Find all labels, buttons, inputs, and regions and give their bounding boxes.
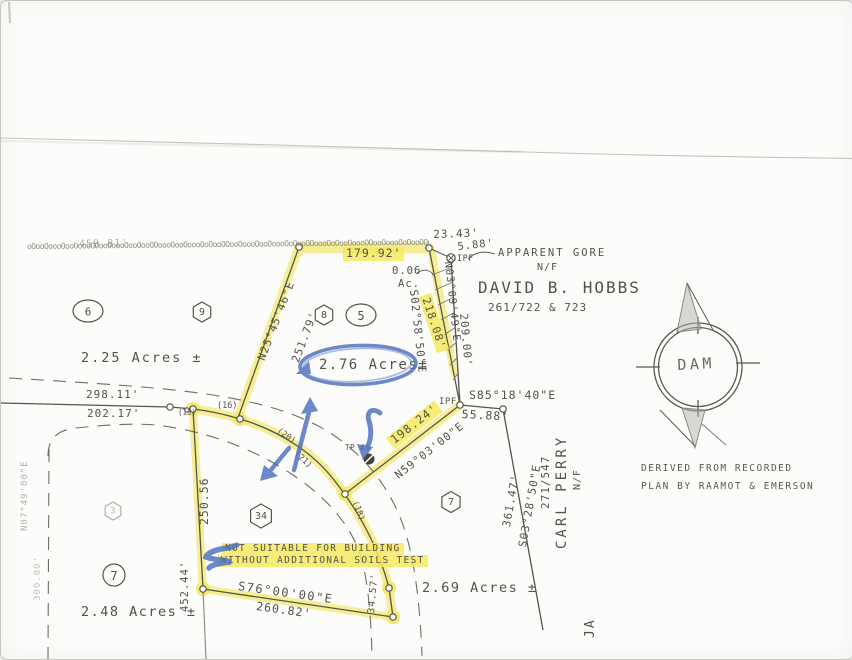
parcel-marker-5: 5 — [357, 310, 364, 322]
gore-area-value: 0.06 — [392, 266, 421, 277]
parcel-marker-34: 34 — [255, 512, 267, 522]
hobbs-tie-distance: 55.88' — [461, 409, 509, 423]
parcel-marker-3-faint: 3 — [110, 508, 115, 517]
hobbs-owner-name: DAVID B. HOBBS — [478, 280, 641, 296]
credits-line2: PLAN BY RAAMOT & EMERSON — [641, 482, 814, 492]
hobbs-deed-ref: 261/722 & 723 — [488, 302, 587, 313]
lot5-acreage: 2.76 Acres± — [319, 358, 428, 372]
lot7-east-acreage: 2.69 Acres ± — [422, 582, 538, 596]
perry-nf-label: N/F — [573, 469, 583, 490]
ja-initials: JA — [584, 618, 597, 638]
wall-distance-label: 459.81' — [79, 239, 128, 250]
west-road-bearing: N07°49'00"E — [21, 460, 30, 531]
lot6-acreage: 2.25 Acres ± — [81, 352, 203, 366]
curve-label-16: (16) — [217, 402, 237, 411]
ipf-mid-label: IPF — [439, 398, 457, 407]
lot6-road-distance-lower: 202.17' — [87, 408, 140, 419]
test-pit-icon — [364, 454, 375, 465]
parcel-marker-8: 8 — [321, 311, 327, 321]
perry-deed-ref: 271/547 — [540, 456, 551, 509]
hobbs-tie-bearing: S85°18'40"E — [469, 390, 556, 402]
gore-top-distance: 23.43' — [433, 227, 479, 240]
ipf-top-label: IPF — [457, 255, 474, 264]
south-arrow-icon — [682, 408, 705, 448]
parcel-marker-6: 6 — [85, 307, 92, 318]
soils-note-line1: NOT SUITABLE FOR BUILDING — [222, 543, 404, 555]
north-arrow-icon — [677, 283, 701, 332]
gore-area-unit: Ac. — [398, 279, 420, 290]
parcel-marker-9: 9 — [199, 308, 205, 318]
lot7-west-acreage: 2.48 Acres ± — [81, 606, 197, 620]
curve-label-13: (13) — [178, 409, 196, 417]
lot5-north-distance: 179.92' — [343, 247, 404, 261]
perry-owner-name: CARL PERRY — [555, 435, 569, 549]
lot34-west-distance: 250.56 — [199, 477, 211, 525]
parcel-marker-7-circle: 7 — [110, 570, 117, 582]
scan-artifacts — [1, 2, 852, 159]
compass-stamp-label: DAM — [677, 356, 715, 373]
credits-line1: DERIVED FROM RECORDED — [641, 464, 793, 474]
lot6-road-distance-upper: 298.11' — [86, 389, 139, 400]
apparent-gore-label: APPARENT GORE — [498, 248, 606, 259]
hobbs-nf-label: N/F — [537, 263, 558, 273]
west-road-distance: 300.00' — [34, 556, 43, 601]
parcel-marker-7-hex: 7 — [448, 498, 454, 508]
scanned-survey-plat: oOooOoooOooOoooOOooOoooOooOooOOoooOooOoo… — [0, 0, 852, 660]
soils-note-line2: WITHOUT ADDITIONAL SOILS TEST — [218, 555, 428, 567]
test-pit-label: TP #5 — [345, 444, 370, 452]
